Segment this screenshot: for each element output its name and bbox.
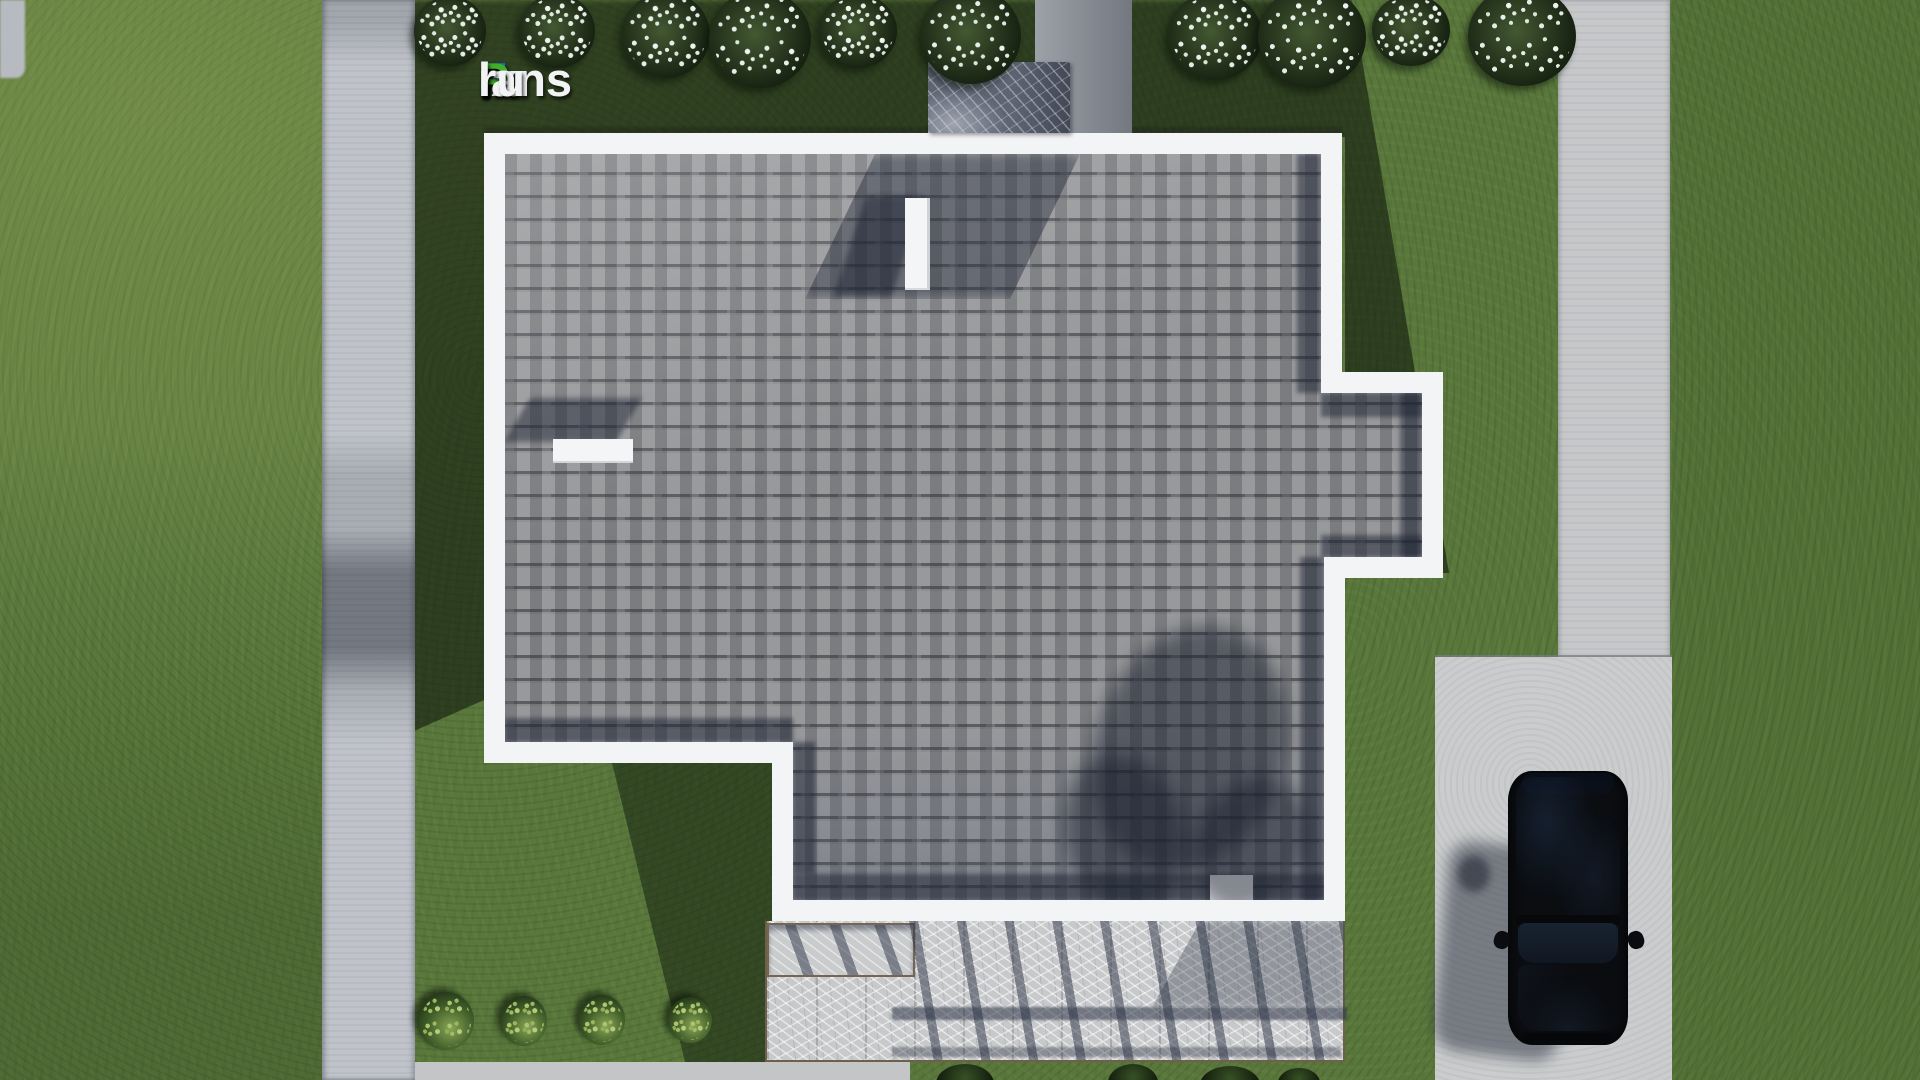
parapet-inner-shadow	[1321, 535, 1422, 557]
bottom-pavement-strip	[415, 1062, 910, 1080]
pergola-post-shadows	[895, 921, 1343, 1060]
car-mirror-shadow	[1458, 856, 1490, 892]
roof-edge-line	[484, 127, 1342, 133]
corner-pavement	[0, 0, 25, 78]
roof-vent	[553, 439, 633, 463]
parapet-inner-shadow	[793, 742, 815, 874]
parapet-inner-shadow	[1400, 393, 1422, 557]
roof-vent-shadow	[504, 398, 641, 442]
green-bush	[501, 996, 547, 1046]
black-car	[1496, 765, 1642, 1055]
site-plan-render: FixPlans.ru	[0, 0, 1920, 1080]
parapet-inner-shadow	[1297, 154, 1321, 393]
lawn-left	[0, 0, 322, 1080]
car-windshield	[1518, 923, 1618, 963]
pergola-beam-shadow-2	[892, 1047, 1341, 1057]
roof-chimney	[905, 198, 930, 290]
car-front-bumper	[1524, 1033, 1612, 1041]
green-bush	[579, 995, 625, 1045]
green-bush	[418, 992, 474, 1050]
green-bush	[668, 997, 712, 1043]
terrace-step	[767, 923, 915, 977]
car-roof	[1516, 777, 1620, 927]
right-walkway	[1558, 0, 1670, 657]
left-walkway	[322, 0, 415, 1080]
car-hood	[1518, 965, 1618, 1031]
parapet-inner-shadow	[505, 718, 793, 742]
logo-letters-ru: ru	[478, 52, 525, 107]
terrace	[765, 921, 1345, 1062]
lawn-right	[1672, 0, 1920, 1080]
pergola-beam-shadow	[892, 1007, 1347, 1020]
